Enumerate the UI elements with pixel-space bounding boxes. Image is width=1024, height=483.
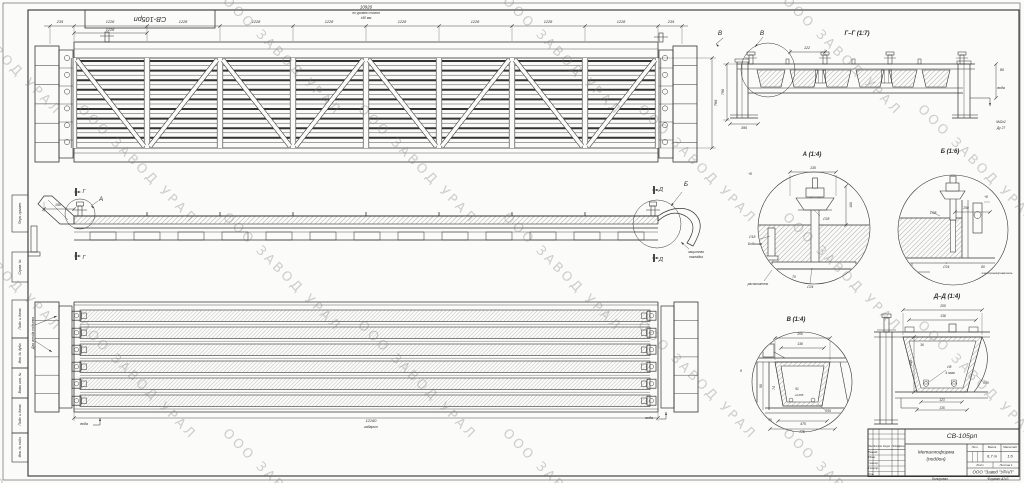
dim-label: R35 [825,409,831,413]
stamp-col: Лист [873,445,880,448]
dim-label: 130 [810,166,816,170]
dim-label: ∅28 [823,217,830,221]
dim-label: 1228 [471,20,480,24]
dim-label: ∅28 [930,211,937,215]
pad-note: накладка [689,255,703,259]
callout-b-label: Б [684,180,688,187]
margin-label: Инв. № дубл. [18,343,22,364]
dim-overall-plan: 12160 [366,419,377,423]
water-label: вода [80,422,88,426]
dim-label: 122 [804,46,810,50]
dim-label: 70 [792,275,796,279]
section-gg-title: Г–Г (1:7) [844,30,869,37]
dim-label: 74 [772,386,776,390]
stamp-col: Лит. [972,445,979,448]
dim-label: ∅8 [947,365,952,369]
dim-label: 1228 [325,20,334,24]
dim-note: по уровню столов [352,11,380,15]
dim-label: ∅24 [943,265,950,269]
section-d-label: Д [659,256,663,262]
dim-label: 235 [57,20,63,24]
dim-label: 80 [981,265,985,269]
detail-v-title: В (1:4) [787,316,806,323]
company-name: ООО "Завод "УРАЛ" [973,470,1014,475]
sprayer-label: распылитель [748,282,769,286]
view-arrow-v: В [718,29,722,36]
dim-label: 775 [799,430,805,434]
dim-note: ±50 мм [361,16,372,20]
dim-label: 395 [741,126,747,130]
dim-label: 796 [721,89,725,95]
doc-name: Металлоформа [918,449,955,454]
dim-label: 150 [55,203,61,207]
margin-label: Перв. примен. [18,202,22,224]
margin-label: Справ. № [18,259,22,274]
stamp-col: Дата [898,445,905,448]
stamp-col: Масштаб [1003,445,1016,448]
dim-label: +0,005 [795,393,804,396]
stamp-row: Н.контр. [867,466,879,469]
dim-label: 36 [920,343,924,347]
dim-label: +8 [748,172,752,176]
callout-a-label: А [99,195,103,202]
dim-label: 1228 [106,28,115,32]
dim-label: 1228 [252,20,261,24]
dim-label: ∅18 [749,235,756,239]
stamp-col: Лист [976,463,983,466]
dim-overall-top: 10920 [360,5,372,10]
section-g-label: Г [82,188,85,194]
margin-label: Инв. № подл. [18,437,22,458]
dim-label: 475 [800,422,806,426]
detail-a-title: А (1:4) [803,151,822,158]
dim-label: 250 [963,206,969,210]
dim-label: 91 [795,387,799,391]
dim-label: 235 [668,20,674,24]
detail-b-title: Б (1:6) [941,148,960,155]
doc-name: (поддон) [926,456,945,461]
section-dd-title: Д–Д (1:4) [934,293,960,300]
drawing-canvas [0,0,1024,483]
drawing-sheet: ООО ЗАВОД УРАЛООО ЗАВОД УРАЛООО ЗАВОД УР… [0,0,1024,483]
dim-label: 248 [909,360,913,366]
stamp-footer: Копировал [932,477,948,481]
detail-v-callout-label: В [760,29,764,36]
section-g-label: Г [82,254,85,260]
dim-label: 100 [849,202,853,208]
margin-label: Подп. и дата [18,308,22,329]
heater-label: электронагреватель [981,271,1012,274]
pad-note: защитная [688,250,704,254]
dim-label: R20 [983,381,989,385]
dim-label: 1228 [179,20,188,24]
stamp-col: Изм [868,445,873,448]
dim-label: 1228 [106,20,115,24]
thread-label: М42х2 [996,120,1006,124]
scale-value: 1:6 [1007,454,1013,459]
stamp-row: Разраб. [868,450,878,453]
dim-label: 138 [940,314,946,318]
corner-code: СВ-105рп [134,15,166,23]
dim-label: 796 [714,100,718,106]
dim-label: 135 [939,406,944,410]
water-label: вода [645,416,653,420]
stamp-row: Утв. [868,472,874,475]
margin-label: Взам. инв. № [18,373,22,394]
water-label: вода [997,86,1005,90]
dim-label: 138 [797,342,803,346]
stamp-col: Масса [988,445,997,448]
dim-label: 8 [740,369,742,373]
section-d-label: Д [659,186,663,192]
boss-label: Бобышка [748,242,762,246]
dim-label: 90 [759,384,763,388]
lifting-sockets-note: Два гнезда подъема [31,317,35,349]
stamp-row: Пров. [868,455,875,458]
doc-code: СВ-105рп [947,432,978,440]
mass-value: 6,7 т [987,454,997,459]
dim-label: 80 [1000,68,1004,72]
dim-label: 70 [768,418,772,422]
pipe-label: Ду 27 [997,126,1005,130]
dim-label: ∅24 [807,285,814,289]
dim-label: 205 [797,332,803,336]
stamp-col: № докум. [879,445,890,448]
dim-label: 1228 [617,20,626,24]
dim-label: +8 [984,195,988,199]
stamp-col: Листов 1 [1000,463,1013,466]
dim-label: 4 паза [945,371,954,375]
dim-label: 123 [939,398,944,402]
dim-label: 1228 [544,20,553,24]
dim-overall-plan-label: габарит [364,425,378,429]
dim-label: 205 [940,304,946,308]
margin-label: Подп. и дата [18,404,22,425]
dim-label: 1228 [398,20,407,24]
stamp-footer: Формат А2х3 [988,477,1009,481]
stamp-row: Т.контр. [868,461,879,464]
